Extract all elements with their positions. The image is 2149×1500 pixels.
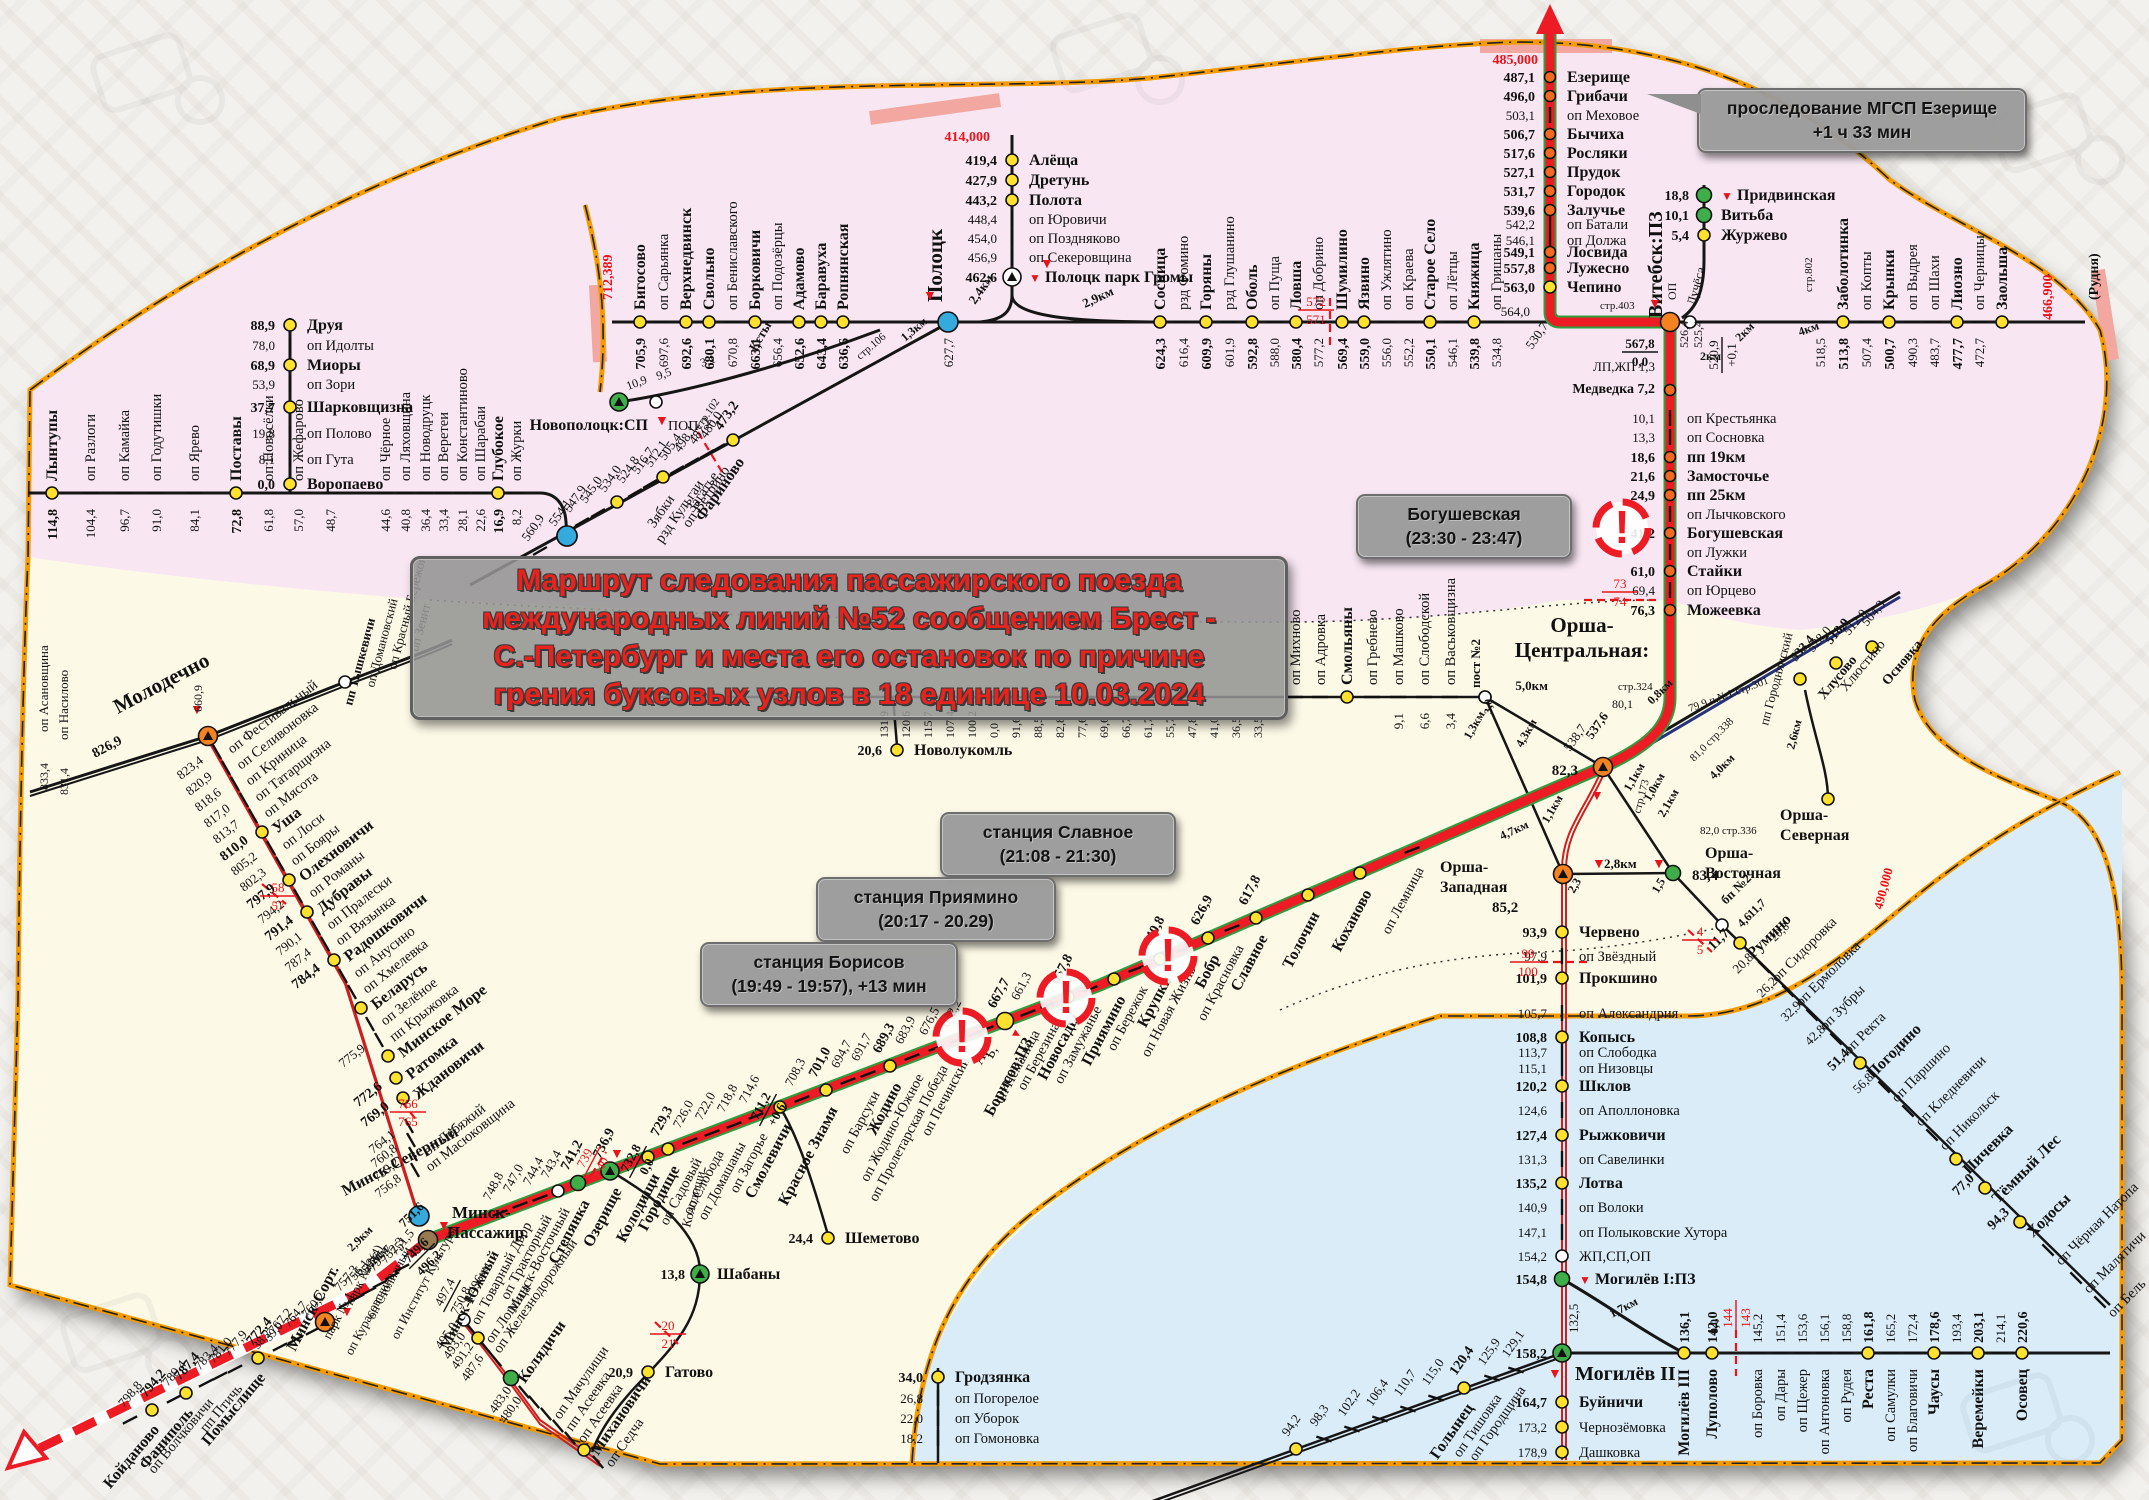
station-name: оп Годутишки bbox=[149, 393, 165, 481]
map-label: 144 bbox=[1720, 1308, 1735, 1328]
station-marker-y bbox=[284, 359, 296, 371]
station-Верхнедвинск: Верхнедвинск692,6 bbox=[678, 207, 695, 370]
station-marker-y bbox=[382, 1050, 394, 1062]
station-оп Черницы: оп Черницы472,7 bbox=[1971, 235, 1988, 367]
km-row-value: 66,7 bbox=[1119, 717, 1133, 738]
station-km: 0,0 bbox=[258, 478, 276, 493]
station-marker-y bbox=[180, 1387, 192, 1399]
map-label: 57 bbox=[272, 898, 286, 913]
station-marker-g bbox=[1666, 866, 1681, 881]
station-marker-y bbox=[1544, 281, 1556, 293]
map-label: стр.324 bbox=[1618, 681, 1653, 693]
station-name: Городок bbox=[1567, 183, 1626, 200]
map-label: 3,0 bbox=[1481, 699, 1495, 714]
station-name: Прудок bbox=[1567, 164, 1621, 181]
station-Шеметово: Шеметово24,4 bbox=[789, 1230, 920, 1247]
station-name: Друя bbox=[307, 317, 343, 334]
station-km: 61,0 bbox=[1631, 565, 1656, 580]
station-marker-y bbox=[301, 906, 313, 918]
station-оп Ужлятино: оп Ужлятино556,0 bbox=[1378, 229, 1395, 367]
station-marker-y bbox=[284, 319, 296, 331]
station-km: 3,4 bbox=[1443, 713, 1458, 730]
station-name: оп Чёрное bbox=[378, 418, 394, 481]
station-km: 154,2 bbox=[1518, 1249, 1547, 1264]
station-km: 173,2 bbox=[1518, 1420, 1547, 1435]
km-row-value: 33,5 bbox=[1251, 717, 1265, 738]
station-marker-y bbox=[1200, 316, 1212, 328]
station-name: оп Лётцы bbox=[1445, 251, 1461, 310]
station-marker-y bbox=[1556, 926, 1568, 938]
station-оп Идолты: оп Идолты78,0 bbox=[252, 337, 374, 354]
km-row-value: 91,6 bbox=[1009, 717, 1023, 738]
map-label: 2,8км bbox=[1604, 856, 1637, 871]
station-km: 483,7 bbox=[1927, 338, 1942, 368]
station-name: Дашковка bbox=[1579, 1445, 1641, 1461]
station-km: 18,6 bbox=[1631, 451, 1656, 466]
station-Могилёв I:ПЗ: Могилёв I:ПЗ154,8 bbox=[1516, 1271, 1697, 1288]
station-marker-t bbox=[199, 1379, 213, 1386]
station-name: Реста bbox=[1860, 1369, 1877, 1409]
map-label: 466,900 bbox=[2041, 275, 2056, 321]
station-marker-gt bbox=[610, 393, 628, 411]
station-name: Борковичи bbox=[747, 230, 764, 310]
station-name: Ловша bbox=[1288, 261, 1305, 310]
railway-map-canvas: Лынтупы114,8оп Разлоги104,4оп Камайка96,… bbox=[0, 0, 2149, 1500]
station-km: 96,7 bbox=[117, 509, 132, 532]
station-рзд Глушанино: рзд Глушанино601,9 bbox=[1221, 216, 1238, 367]
station-km: 178,6 bbox=[1928, 1312, 1943, 1344]
station-marker-ot bbox=[199, 727, 218, 746]
station-marker-y bbox=[1341, 691, 1353, 703]
station-marker-y bbox=[1202, 932, 1214, 944]
station-km: 8,1 bbox=[259, 452, 275, 467]
callout-borisov: станция Борисов (19:49 - 19:57), +13 мин bbox=[700, 942, 958, 1007]
railway-map-screenshot: Лынтупы114,8оп Разлоги104,4оп Камайка96,… bbox=[0, 0, 2149, 1500]
station-marker-y bbox=[1837, 316, 1849, 328]
map-label: ! bbox=[954, 1010, 969, 1062]
station-name: оп Машково bbox=[1391, 608, 1407, 685]
station-km: 18,8 bbox=[1665, 189, 1690, 204]
station-marker-y bbox=[1556, 1031, 1568, 1043]
station-оп Погорелое: оп Погорелое26,8 bbox=[900, 1390, 1039, 1407]
station-km: 592,8 bbox=[1246, 338, 1261, 370]
station-marker-y bbox=[1108, 973, 1120, 985]
map-label: 5,0км bbox=[1515, 678, 1548, 693]
station-km: 69,4 bbox=[1632, 583, 1655, 598]
station-marker-y bbox=[252, 1352, 264, 1364]
station-marker-y bbox=[1883, 316, 1895, 328]
station-name: оп Михново bbox=[1288, 609, 1304, 685]
station-marker-y bbox=[1290, 316, 1302, 328]
station-marker-y bbox=[1556, 1421, 1568, 1433]
station-marker-g bbox=[1697, 208, 1712, 223]
station-name: рзд Глушанино bbox=[1222, 216, 1238, 310]
station-km: 506,7 bbox=[1504, 128, 1536, 143]
station-marker-or bbox=[1545, 186, 1556, 197]
station-name: оп Копты bbox=[1859, 251, 1875, 310]
station-name: оп Звёздный bbox=[1579, 949, 1657, 965]
map-label: 712,389 bbox=[601, 255, 616, 301]
station-km: 108,8 bbox=[1516, 1031, 1548, 1046]
callout-text: станция Борисов bbox=[714, 951, 944, 975]
station-marker-y bbox=[1468, 316, 1480, 328]
station-name: оп Крестьянка bbox=[1687, 411, 1777, 427]
station-name: оп Ужлятино bbox=[1379, 229, 1395, 310]
station-Буйничи: Буйничи164,7 bbox=[1516, 1394, 1644, 1411]
station-Богушевская: Богушевская41,2 bbox=[1631, 525, 1784, 542]
title-line: Маршрут следования пассажирского поезда bbox=[516, 562, 1181, 600]
map-label: Могилёв II bbox=[1575, 1363, 1676, 1385]
station-marker-y bbox=[1979, 1182, 1991, 1194]
station-km: 559,0 bbox=[1358, 338, 1373, 370]
station-km: 705,9 bbox=[634, 338, 649, 370]
station-оп Журки: оп Журки8,2 bbox=[508, 421, 525, 526]
station-km: 13,8 bbox=[661, 1268, 686, 1283]
station-marker-t bbox=[123, 1416, 137, 1423]
map-label: ▼ bbox=[923, 289, 937, 304]
station-marker-y bbox=[1424, 316, 1436, 328]
station-marker-g bbox=[571, 1176, 586, 1191]
station-оп Савелинки: оп Савелинки131,3 bbox=[1518, 1151, 1665, 1168]
station-marker-y bbox=[2014, 1216, 2026, 1228]
station-marker-y bbox=[1822, 793, 1834, 805]
map-label: 414,000 bbox=[945, 130, 991, 145]
station-Гродзянка: Гродзянка34,0 bbox=[899, 1369, 1031, 1386]
station-marker-y bbox=[1006, 174, 1018, 186]
station-name: оп Меховое bbox=[1567, 108, 1639, 124]
station-name: оп Александрия bbox=[1579, 1006, 1679, 1022]
station-name: оп Погорелое bbox=[955, 1391, 1039, 1407]
station-оп Сосновка: оп Сосновка13,3 bbox=[1632, 429, 1765, 446]
station-marker-t bbox=[228, 1365, 242, 1372]
station-Можеевка: Можеевка76,3 bbox=[1631, 602, 1761, 619]
station-marker-y bbox=[822, 1232, 834, 1244]
map-label: 572 bbox=[1306, 294, 1326, 309]
station-marker-or bbox=[1545, 148, 1556, 159]
station-оп Копты: оп Копты507,4 bbox=[1858, 251, 1875, 367]
station-name: Адамово bbox=[791, 248, 808, 310]
station-name: Свольно bbox=[701, 247, 718, 310]
station-оп Поздняково: оп Поздняково454,0 bbox=[968, 230, 1120, 247]
station-оп Выдрея: оп Выдрея490,3 bbox=[1904, 244, 1921, 367]
station-name: Могилёв III bbox=[1676, 1369, 1693, 1456]
station-name: Заольша bbox=[1994, 247, 2011, 310]
callout-ezerishche: проследование МГСП Езерище +1 ч 33 мин bbox=[1697, 88, 2027, 153]
station-marker-y bbox=[891, 744, 903, 756]
station-name: оп Гомоновка bbox=[955, 1431, 1040, 1447]
station-marker-or bbox=[1665, 528, 1676, 539]
station-оп Адровка: оп Адровка bbox=[1312, 613, 1329, 697]
station-name: ЖП,СП,ОП bbox=[1579, 1249, 1651, 1265]
station-name: Крынки bbox=[1881, 249, 1898, 310]
station-km: 507,4 bbox=[1859, 338, 1874, 368]
station-name: Лиозно bbox=[1949, 257, 1966, 310]
station-оп Бениславского: оп Бениславского670,8 bbox=[724, 201, 741, 367]
station-km: 6,6 bbox=[1417, 713, 1432, 730]
station-name: оп Антоновка bbox=[1817, 1368, 1833, 1454]
km-row-value: 61,7 bbox=[1141, 717, 1155, 738]
station-name: Полоцк парк Громы bbox=[1045, 269, 1194, 286]
station-name: оп Константиново bbox=[455, 368, 471, 481]
map-label: 766 bbox=[398, 1096, 418, 1111]
station-marker-y bbox=[355, 1002, 367, 1014]
station-name: Рыжковичи bbox=[1579, 1127, 1666, 1144]
station-name: оп Разлоги bbox=[83, 414, 99, 481]
station-Шарковщизна: Шарковщизна37,7 bbox=[251, 399, 414, 416]
station-marker-y bbox=[1928, 1347, 1940, 1359]
station-km: 158,2 bbox=[1516, 1347, 1548, 1362]
station-km: 21,6 bbox=[1631, 470, 1656, 485]
station-Княжица: Княжица539,8 bbox=[1466, 242, 1483, 369]
station-km: 692,6 bbox=[680, 338, 695, 370]
station-оп Слободка: оп Слободка113,7 bbox=[1518, 1044, 1657, 1061]
station-km: 472,7 bbox=[1972, 338, 1987, 368]
station-marker-or bbox=[1665, 566, 1676, 577]
station-marker-y bbox=[1006, 194, 1018, 206]
station-km: 78,0 bbox=[252, 338, 275, 353]
station-name: Червено bbox=[1579, 924, 1640, 941]
station-name: оп Выдрея bbox=[1905, 244, 1921, 310]
map-label: 833,4 bbox=[37, 763, 51, 790]
station-name: оп Камайка bbox=[117, 409, 133, 481]
km-row-value: 36,5 bbox=[1229, 717, 1243, 738]
station-km: 220,6 bbox=[2016, 1312, 2031, 1344]
map-label: ▼ bbox=[1590, 789, 1604, 804]
station-km: 5,4 bbox=[1672, 229, 1690, 244]
station-km: 569,4 bbox=[1336, 338, 1351, 370]
station-marker-y bbox=[1556, 1080, 1568, 1092]
station-km: 503,1 bbox=[1506, 108, 1535, 123]
station-Заболотинка: Заболотинка513,8 bbox=[1835, 218, 1852, 370]
map-label: 80,1 bbox=[1612, 697, 1633, 711]
station-km: 153,6 bbox=[1795, 1313, 1810, 1343]
map-label: Северная bbox=[1780, 827, 1850, 844]
station-оп Чёрное: оп Чёрное44,6 bbox=[377, 418, 394, 532]
station-marker-y bbox=[1556, 1396, 1568, 1408]
station-name: Гродзянка bbox=[955, 1369, 1030, 1386]
station-marker-wt bbox=[1003, 268, 1021, 286]
map-label: 520,9 bbox=[1706, 340, 1721, 369]
station-km: 24,4 bbox=[789, 1232, 814, 1247]
station-marker-b bbox=[557, 526, 577, 546]
map-label: Центральная: bbox=[1515, 638, 1650, 662]
station-name: оп Шарабаи bbox=[473, 406, 489, 481]
station-name: оп Пуща bbox=[1267, 255, 1283, 310]
station-name: оп Рудея bbox=[1839, 1369, 1855, 1423]
station-name: оп Дары bbox=[1773, 1369, 1789, 1421]
station-km: 636,6 bbox=[837, 338, 852, 370]
station-marker-y bbox=[1950, 1153, 1962, 1165]
station-marker-or bbox=[1545, 129, 1556, 140]
station-marker-y bbox=[1354, 867, 1366, 879]
station-marker-y bbox=[256, 826, 268, 838]
station-оп Крестьянка: оп Крестьянка10,1 bbox=[1632, 410, 1777, 427]
station-name: Богушевская bbox=[1687, 525, 1783, 542]
km-row-value: 69,6 bbox=[1097, 717, 1111, 738]
station-marker-w bbox=[650, 396, 662, 408]
station-name: пп 19км bbox=[1687, 449, 1746, 466]
km-row-value: 82,8 bbox=[1053, 717, 1067, 738]
station-name: оп Краева bbox=[1401, 248, 1417, 310]
station-name: Росляки bbox=[1567, 145, 1628, 162]
station-marker-or bbox=[1545, 91, 1556, 102]
station-name: Шабаны bbox=[717, 1266, 781, 1283]
station-627,7: 627,7 bbox=[938, 312, 958, 367]
station-name: Полота bbox=[1029, 192, 1082, 209]
station-marker-y bbox=[283, 874, 295, 886]
map-label: Новополоцк:СП bbox=[530, 417, 649, 434]
station-km: 214,1 bbox=[1993, 1314, 2008, 1343]
station-name: оп Благовичи bbox=[1905, 1369, 1921, 1452]
map-label: ОП bbox=[1665, 282, 1679, 300]
station-name: Витьба bbox=[1721, 207, 1773, 224]
station-marker-y bbox=[146, 1404, 158, 1416]
km-row-value: 47,8 bbox=[1185, 717, 1199, 738]
station-name: Шклов bbox=[1579, 1078, 1631, 1095]
station-marker-y bbox=[230, 487, 242, 499]
station-name: оп Юровичи bbox=[1029, 212, 1107, 228]
station-оп Низовцы: оп Низовцы115,1 bbox=[1518, 1060, 1653, 1077]
station-km: 135,2 bbox=[1516, 1177, 1548, 1192]
callout-text: (21:08 - 21:30) bbox=[954, 845, 1162, 869]
station-marker-y bbox=[1556, 1177, 1568, 1189]
station-marker-y bbox=[662, 1143, 674, 1155]
station-marker-or bbox=[1665, 471, 1676, 482]
station-Шумилино: Шумилино569,4 bbox=[1334, 229, 1351, 369]
station-name: оп Сарьянка bbox=[656, 233, 672, 310]
station-name: Оболь bbox=[1244, 264, 1261, 310]
callout-slavnoye: станция Славное (21:08 - 21:30) bbox=[940, 812, 1176, 877]
station-marker-t bbox=[213, 1372, 227, 1379]
station-name: Гатово bbox=[665, 1364, 713, 1381]
station-km: 643,4 bbox=[815, 338, 830, 370]
station-marker-y bbox=[1794, 673, 1806, 685]
station-name: оп Юрцево bbox=[1687, 583, 1756, 599]
station-km: 84,1 bbox=[187, 509, 202, 532]
map-label: 571 bbox=[1306, 312, 1326, 327]
station-name: оп Идолты bbox=[307, 338, 374, 354]
station-km: 193,4 bbox=[1949, 1313, 1964, 1343]
map-label: Пассажир. bbox=[447, 1223, 528, 1242]
station-marker-y bbox=[1302, 889, 1314, 901]
station-km: 656,4 bbox=[770, 338, 785, 368]
station-158,2: 158,2 bbox=[1516, 1344, 1572, 1362]
station-km: 557,8 bbox=[1504, 262, 1536, 277]
station-name: Лосвида bbox=[1567, 244, 1628, 261]
station-km: 419,4 bbox=[966, 154, 998, 169]
station-marker-y bbox=[1556, 972, 1568, 984]
station-name: Шеметово bbox=[845, 1230, 919, 1247]
station-marker-or bbox=[1665, 385, 1676, 396]
station-name: Езерище bbox=[1567, 69, 1630, 86]
map-label: оп Насилово bbox=[56, 670, 71, 740]
station-km: 26,8 bbox=[900, 1391, 923, 1406]
station-km: 527,1 bbox=[1504, 166, 1536, 181]
station-marker-y bbox=[284, 478, 296, 490]
station-km: 490,3 bbox=[1905, 338, 1920, 367]
station-km: 33,4 bbox=[436, 509, 451, 532]
station-Поставы: Поставы72,8 bbox=[228, 416, 245, 534]
station-km: 57,0 bbox=[291, 509, 306, 532]
station-Лужесно: Лужесно557,8 bbox=[1504, 260, 1630, 277]
station-оп Александрия: оп Александрия105,7 bbox=[1518, 1005, 1679, 1022]
station-Червено: Червено93,9 bbox=[1523, 924, 1640, 941]
station-name: Дретунь bbox=[1029, 172, 1090, 189]
station-km: 539,8 bbox=[1468, 338, 1483, 370]
station-Чернозёмовка: Чернозёмовка173,2 bbox=[1518, 1420, 1667, 1436]
hotbox-warning-icon: ! bbox=[1142, 929, 1194, 982]
station-name: Журжево bbox=[1721, 227, 1788, 244]
station-km: 115,1 bbox=[1518, 1061, 1547, 1076]
map-label: 567,8 bbox=[1625, 336, 1655, 351]
km-row-value: 41,0 bbox=[1207, 717, 1221, 738]
station-km: 627,7 bbox=[941, 338, 956, 368]
station-name: оп Зори bbox=[307, 377, 355, 393]
station-Шабаны: Шабаны13,8 bbox=[661, 1265, 781, 1283]
station-name: Глубокое bbox=[490, 416, 507, 481]
station-оп Боровка: оп Боровка145,2 bbox=[1749, 1314, 1766, 1438]
station-name: оп Савелинки bbox=[1579, 1152, 1665, 1168]
station-name: Поставы bbox=[228, 416, 245, 481]
station-marker-y bbox=[1556, 1446, 1568, 1458]
station-km: 549,1 bbox=[1504, 246, 1536, 261]
station-оп Гришаны: оп Гришаны534,8 bbox=[1488, 234, 1505, 368]
map-label: 0,0 bbox=[1632, 354, 1648, 369]
station-km: 552,2 bbox=[1401, 338, 1416, 367]
station-marker-y bbox=[1358, 316, 1370, 328]
map-label: Медведка 7,2 bbox=[1572, 382, 1655, 397]
station-km: 16,9 bbox=[492, 509, 507, 534]
station-оп Батали: оп Батали542,2 bbox=[1506, 216, 1629, 233]
station-marker-y bbox=[328, 954, 340, 966]
station-name: Шумилино bbox=[1334, 229, 1351, 310]
station-km: 601,9 bbox=[1222, 338, 1237, 367]
station-km: 477,7 bbox=[1951, 338, 1966, 370]
station-оп Полово: оп Полово19,8 bbox=[252, 425, 371, 442]
callout-text: (23:30 - 23:47) bbox=[1370, 527, 1558, 551]
map-label: ! bbox=[1058, 971, 1073, 1023]
station-оп Щежер: оп Щежер153,6 bbox=[1794, 1313, 1811, 1432]
station-name: Грибачи bbox=[1567, 88, 1628, 105]
station-name: Шарковщизна bbox=[307, 399, 413, 416]
station-Журжево: Журжево5,4 bbox=[1672, 227, 1788, 244]
station-оп Годутишки: оп Годутишки91,0 bbox=[148, 393, 165, 531]
station-оп Аполлоновка: оп Аполлоновка124,6 bbox=[1518, 1102, 1681, 1119]
station-km: 518,5 bbox=[1813, 338, 1828, 367]
station-km: 697,6 bbox=[656, 338, 671, 368]
station-km: 104,4 bbox=[83, 509, 98, 539]
station-marker-y bbox=[284, 401, 296, 413]
station-km: 577,2 bbox=[1311, 338, 1326, 367]
callout-text: Богушевская bbox=[1370, 503, 1558, 527]
title-line: С.-Петербург и места его остановок по пр… bbox=[494, 638, 1205, 676]
station-name: Стайки bbox=[1687, 563, 1742, 580]
station-marker-y bbox=[820, 1084, 832, 1096]
map-label: (Рудня) bbox=[2087, 253, 2102, 300]
station-marker-y bbox=[611, 496, 623, 508]
station-km: 36,4 bbox=[418, 509, 433, 532]
station-name: оп Самулки bbox=[1883, 1369, 1899, 1442]
station-name: Чепино bbox=[1567, 279, 1622, 296]
station-name: Лынтупы bbox=[44, 410, 61, 482]
callout-text: станция Приямино bbox=[830, 886, 1042, 910]
station-name: Буйничи bbox=[1579, 1394, 1643, 1411]
map-label: 4 bbox=[1697, 924, 1704, 939]
station-name: Миоры bbox=[307, 357, 361, 374]
station-оп Уборок: оп Уборок22,0 bbox=[900, 1410, 1020, 1427]
station-name: оп Лужки bbox=[1687, 545, 1747, 561]
callout-text: проследование МГСП Езерище bbox=[1711, 97, 2013, 121]
